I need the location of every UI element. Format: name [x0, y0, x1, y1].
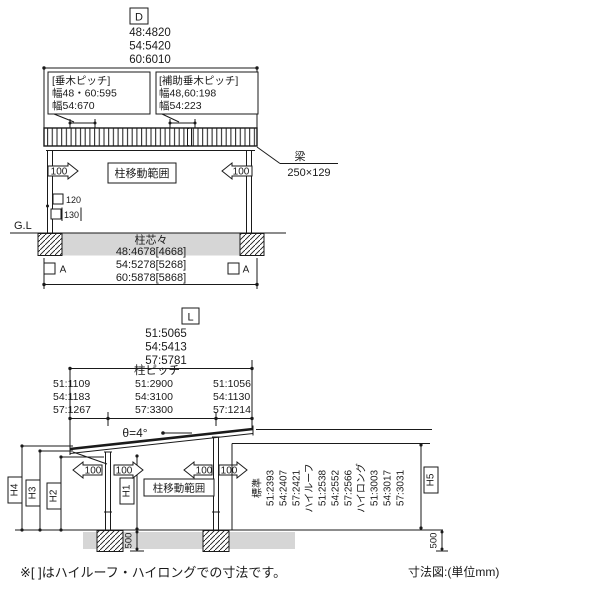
height-label-h4: H4: [10, 483, 21, 496]
rafter-pitch-line: 幅54:670: [52, 99, 95, 112]
roof-slope-value: θ=4°: [122, 426, 147, 440]
post-move-value: 100: [233, 167, 250, 178]
aux-rafter-pitch-title: [補助垂木ピッチ]: [159, 74, 238, 87]
post-span-dim: 54:5278[5268]: [116, 259, 186, 271]
foundation-right: [240, 234, 264, 256]
rear-overhang-dims: 51:1056 54:1130 57:1214: [213, 378, 251, 416]
post-move-value: 100: [85, 466, 102, 477]
front-width-dim: 54:5420: [129, 41, 171, 53]
front-overhang-dims: 51:1109 54:1183 57:1267: [53, 378, 91, 416]
roof-panel: [44, 128, 257, 146]
pitch-marks: [69, 119, 197, 128]
height-table-entry: 標準: [251, 478, 264, 498]
side-section-label: L: [187, 312, 193, 324]
dim-text: 57:3300: [135, 404, 173, 416]
side-elevation: L 51:5065 54:5413 57:5781 柱ピッチ 51:1109 5…: [8, 308, 448, 552]
post-span-label: 柱芯々: [135, 233, 168, 247]
dimension-drawing: D 48:4820 54:5420 60:6010 [垂木ピッチ] 幅48・60…: [0, 0, 600, 600]
aux-rafter-pitch-line: 幅48,60:198: [159, 87, 216, 100]
post-move-value: 100: [221, 466, 238, 477]
ground-level-label: G.L: [14, 220, 32, 232]
height-table-entry: 51:2393: [266, 469, 277, 506]
dim-text: 57:1267: [53, 404, 91, 416]
height-table-entry: 57:3031: [396, 469, 407, 506]
post-section-dim: 130: [64, 210, 79, 220]
caption: 寸法図:(単位mm): [408, 564, 499, 579]
aux-rafter-pitch-box: [補助垂木ピッチ] 幅48,60:198 幅54:223: [156, 72, 258, 122]
foundation-left: [38, 234, 62, 256]
height-table-entry: 57:2566: [344, 469, 355, 506]
foundation-depth-value: 500: [429, 533, 440, 549]
post-section-dim: 120: [66, 195, 81, 205]
section-marker-left: A: [44, 263, 67, 276]
height-table: 標準 51:2393 54:2407 57:2421 ハイルーフ 51:2538…: [251, 463, 407, 513]
front-elevation: D 48:4820 54:5420 60:6010 [垂木ピッチ] 幅48・60…: [10, 8, 338, 289]
post-span-dim: 48:4678[4668]: [116, 246, 186, 258]
post-move-arrow-right: 100: [222, 163, 252, 179]
beam-size: 250×129: [287, 167, 330, 179]
foundation-right: [203, 531, 229, 552]
height-table-entry: 54:2407: [279, 469, 290, 506]
dim-text: 51:2900: [135, 378, 173, 390]
footnote: ※[ ]はハイルーフ・ハイロングでの寸法です。: [20, 565, 286, 580]
post-span-dim: 60:5878[5868]: [116, 272, 186, 284]
section-marker-right: A: [228, 263, 250, 276]
side-roof: [70, 426, 253, 465]
height-label-h1: H1: [122, 484, 133, 497]
drawing-canvas: D 48:4820 54:5420 60:6010 [垂木ピッチ] 幅48・60…: [0, 0, 600, 600]
dim-text: 54:1183: [53, 391, 90, 403]
dim-text: 51:1109: [53, 378, 90, 390]
side-length-dim: 51:5065: [145, 328, 187, 340]
leader-line: [54, 114, 74, 122]
side-post-move-arrows: 100 100 100 100: [73, 462, 247, 478]
post-move-value: 100: [116, 466, 133, 477]
aux-rafter-pitch-line: 幅54:223: [159, 99, 202, 112]
post-move-value: 100: [196, 466, 213, 477]
post-pitch-label: 柱ピッチ: [134, 363, 180, 377]
height-table-entry: 54:2552: [331, 469, 342, 506]
height-table-entry: ハイロング: [355, 463, 368, 513]
post-move-range-label: 柱移動範囲: [153, 482, 206, 495]
beam-label: 梁: [295, 149, 306, 163]
front-width-dim: 48:4820: [129, 27, 171, 39]
post-move-range-label: 柱移動範囲: [115, 166, 170, 180]
front-width-dim: 60:6010: [129, 54, 171, 66]
rafter-pitch-title: [垂木ピッチ]: [52, 75, 110, 87]
height-table-entry: 51:3003: [370, 469, 381, 506]
post-move-value: 100: [51, 167, 68, 178]
height-table-entry: 54:3017: [383, 469, 394, 506]
height-label-h2: H2: [49, 489, 60, 502]
beam-callout: 梁 250×129: [257, 147, 338, 179]
dim-text: 54:3100: [135, 391, 173, 403]
rafter-pitch-box: [垂木ピッチ] 幅48・60:595 幅54:670: [48, 72, 150, 122]
height-label-h5: H5: [426, 473, 437, 486]
foundation-depth-right: 500: [429, 530, 449, 551]
dim-text: 54:1130: [213, 391, 250, 403]
height-table-entry: ハイルーフ: [305, 463, 316, 512]
height-table-entry: 57:2421: [292, 469, 303, 506]
notes: ※[ ]はハイルーフ・ハイロングでの寸法です。 寸法図:(単位mm): [20, 564, 499, 580]
rafter-pitch-line: 幅48・60:595: [52, 87, 117, 100]
section-marker-label: A: [243, 265, 250, 276]
dim-text: 57:1214: [213, 404, 251, 416]
foundation-left: [97, 531, 123, 552]
section-marker-label: A: [60, 265, 67, 276]
height-table-entry: 51:2538: [318, 469, 329, 506]
side-length-dim: 54:5413: [145, 342, 187, 354]
front-section-label: D: [135, 12, 143, 24]
height-label-h3: H3: [28, 486, 39, 499]
dim-text: 51:1056: [213, 378, 251, 390]
foundation-depth-value: 500: [124, 533, 135, 549]
post-span-dims: 51:2900 54:3100 57:3300: [135, 378, 173, 416]
eave-bracket: [73, 452, 107, 464]
post-section-detail: 120 130: [51, 194, 81, 221]
